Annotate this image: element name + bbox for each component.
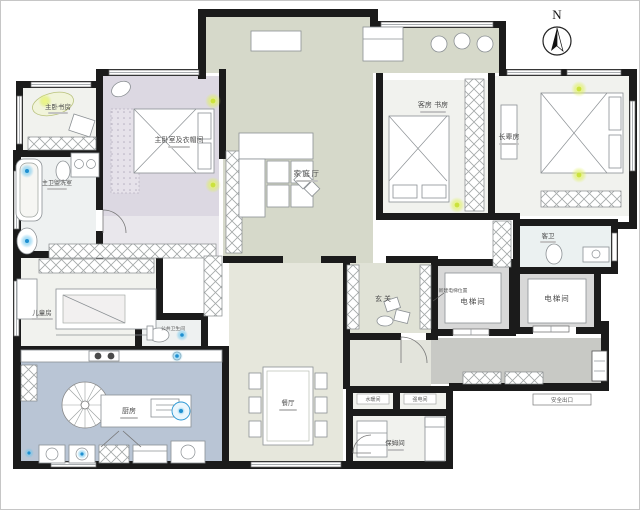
- toilet: [546, 244, 562, 264]
- guest-bath-label: 客卫: [542, 231, 556, 240]
- round-chair: [454, 33, 470, 49]
- dim-bar: [279, 409, 297, 411]
- guest-room-furniture: [389, 116, 449, 202]
- chaise: [501, 105, 517, 159]
- dim-bar: [386, 449, 404, 451]
- guest-room-label: 客房 书房: [418, 100, 448, 109]
- family-hall-label: 家庭厅: [294, 168, 321, 178]
- vanity: [71, 153, 99, 177]
- master-bath-label: 主卫盥洗室: [42, 179, 72, 187]
- dim-bar: [48, 112, 68, 114]
- kids-room-label: 儿童房: [32, 308, 52, 317]
- sofa: [239, 133, 313, 159]
- elevator1-label: 电梯间: [460, 296, 486, 306]
- toilet: [56, 161, 70, 181]
- compass-needle-light: [557, 28, 563, 51]
- vanity: [583, 247, 609, 262]
- dim-bar: [420, 111, 446, 113]
- elder-room-label: 长辈房: [499, 132, 520, 141]
- kitchen-label: 厨房: [122, 406, 136, 415]
- piano: [363, 27, 403, 61]
- counter: [21, 350, 222, 362]
- new-elevator-note: 新建电梯位置: [439, 287, 468, 294]
- dim-bar: [120, 417, 138, 419]
- electrical-label: 强电间: [412, 396, 427, 403]
- compass-n-label: N: [552, 7, 562, 22]
- dim-bar: [540, 241, 556, 243]
- dim-bar: [47, 188, 67, 190]
- dining-label: 餐厅: [282, 398, 296, 407]
- public-bath-label: 公共卫生间: [161, 325, 185, 332]
- dim-bar: [31, 318, 53, 320]
- nanny-label: 保姆间: [385, 438, 405, 447]
- elevator2-label: 电梯间: [544, 293, 570, 303]
- dim-bar: [499, 143, 519, 145]
- compass-needle-dark: [551, 28, 557, 51]
- foyer-label: 玄关: [375, 294, 393, 303]
- compass: N: [543, 7, 571, 55]
- foyer-lower-floor: [350, 340, 431, 386]
- floorplan-canvas: 主卧书房 主卧室及衣帽间 主卫盥洗室 家庭厅 客房 书房 长辈房 客卫 儿童房 …: [0, 0, 640, 510]
- cooktop: [89, 351, 119, 361]
- master-study-label: 主卧书房: [45, 102, 71, 111]
- dim-bar: [168, 146, 190, 148]
- floorplan-svg: 主卧书房 主卧室及衣帽间 主卫盥洗室 家庭厅 客房 书房 长辈房 客卫 儿童房 …: [1, 1, 640, 510]
- safety-exit-label: 安全出口: [551, 396, 573, 404]
- round-chair: [477, 36, 493, 52]
- master-bedroom-label: 主卧室及衣帽间: [155, 135, 204, 144]
- round-chair: [431, 36, 447, 52]
- plumbing-label: 水暖间: [365, 396, 380, 403]
- dim-bar: [296, 180, 318, 182]
- fire-hydrant-box: [592, 351, 607, 381]
- console-table: [251, 31, 301, 51]
